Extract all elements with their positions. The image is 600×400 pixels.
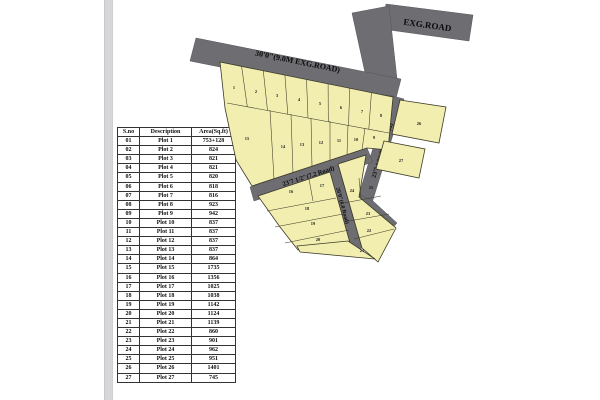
plot-label-1: 1 <box>233 85 235 90</box>
plot-label-12: 12 <box>319 140 323 145</box>
plot-label-2: 2 <box>255 89 257 94</box>
layout-plan-drawing: EXG.ROAD 30'0"(9.0M EXG.ROAD) 23'7 1/2"(… <box>0 0 600 400</box>
plot-label-22: 22 <box>367 228 371 233</box>
plot-label-21: 21 <box>360 248 364 253</box>
plot-label-11: 11 <box>337 138 341 143</box>
